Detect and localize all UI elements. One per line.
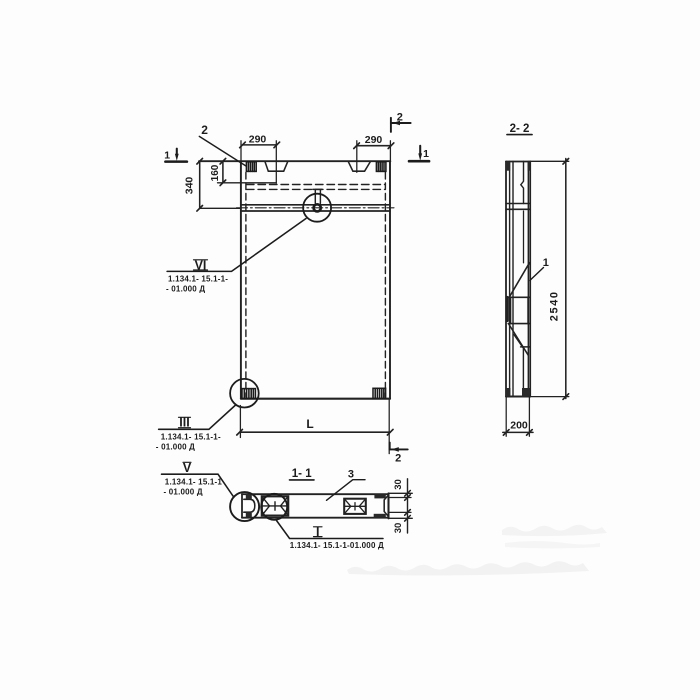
svg-text:L: L — [306, 417, 313, 431]
svg-text:290: 290 — [365, 134, 383, 146]
svg-text:2: 2 — [395, 452, 401, 464]
svg-text:1: 1 — [423, 148, 429, 160]
svg-text:1- 1: 1- 1 — [292, 468, 312, 480]
svg-text:2540: 2540 — [548, 290, 560, 321]
svg-text:1.134.1- 15.1-1-: 1.134.1- 15.1-1- — [168, 275, 228, 284]
svg-text:30: 30 — [393, 523, 404, 534]
svg-text:1.134.1- 15.1-1: 1.134.1- 15.1-1 — [165, 478, 223, 487]
svg-text:1: 1 — [164, 150, 170, 162]
svg-text:2- 2: 2- 2 — [510, 123, 530, 135]
svg-text:- 01.000 Д: - 01.000 Д — [156, 443, 195, 452]
svg-text:2: 2 — [397, 112, 403, 124]
svg-text:3: 3 — [348, 469, 354, 481]
svg-text:340: 340 — [184, 177, 196, 195]
svg-text:160: 160 — [210, 164, 221, 181]
svg-text:1.134.1- 15.1-1-: 1.134.1- 15.1-1- — [161, 433, 221, 442]
svg-text:1: 1 — [543, 257, 549, 269]
svg-text:290: 290 — [249, 133, 267, 145]
svg-text:2: 2 — [201, 123, 208, 137]
svg-text:200: 200 — [510, 420, 528, 432]
svg-text:1.134.1- 15.1-1-01.000 Д: 1.134.1- 15.1-1-01.000 Д — [290, 541, 384, 550]
svg-text:- 01.000 Д: - 01.000 Д — [166, 285, 205, 294]
svg-text:30: 30 — [393, 479, 404, 490]
svg-text:- 01.000 Д: - 01.000 Д — [164, 488, 203, 497]
